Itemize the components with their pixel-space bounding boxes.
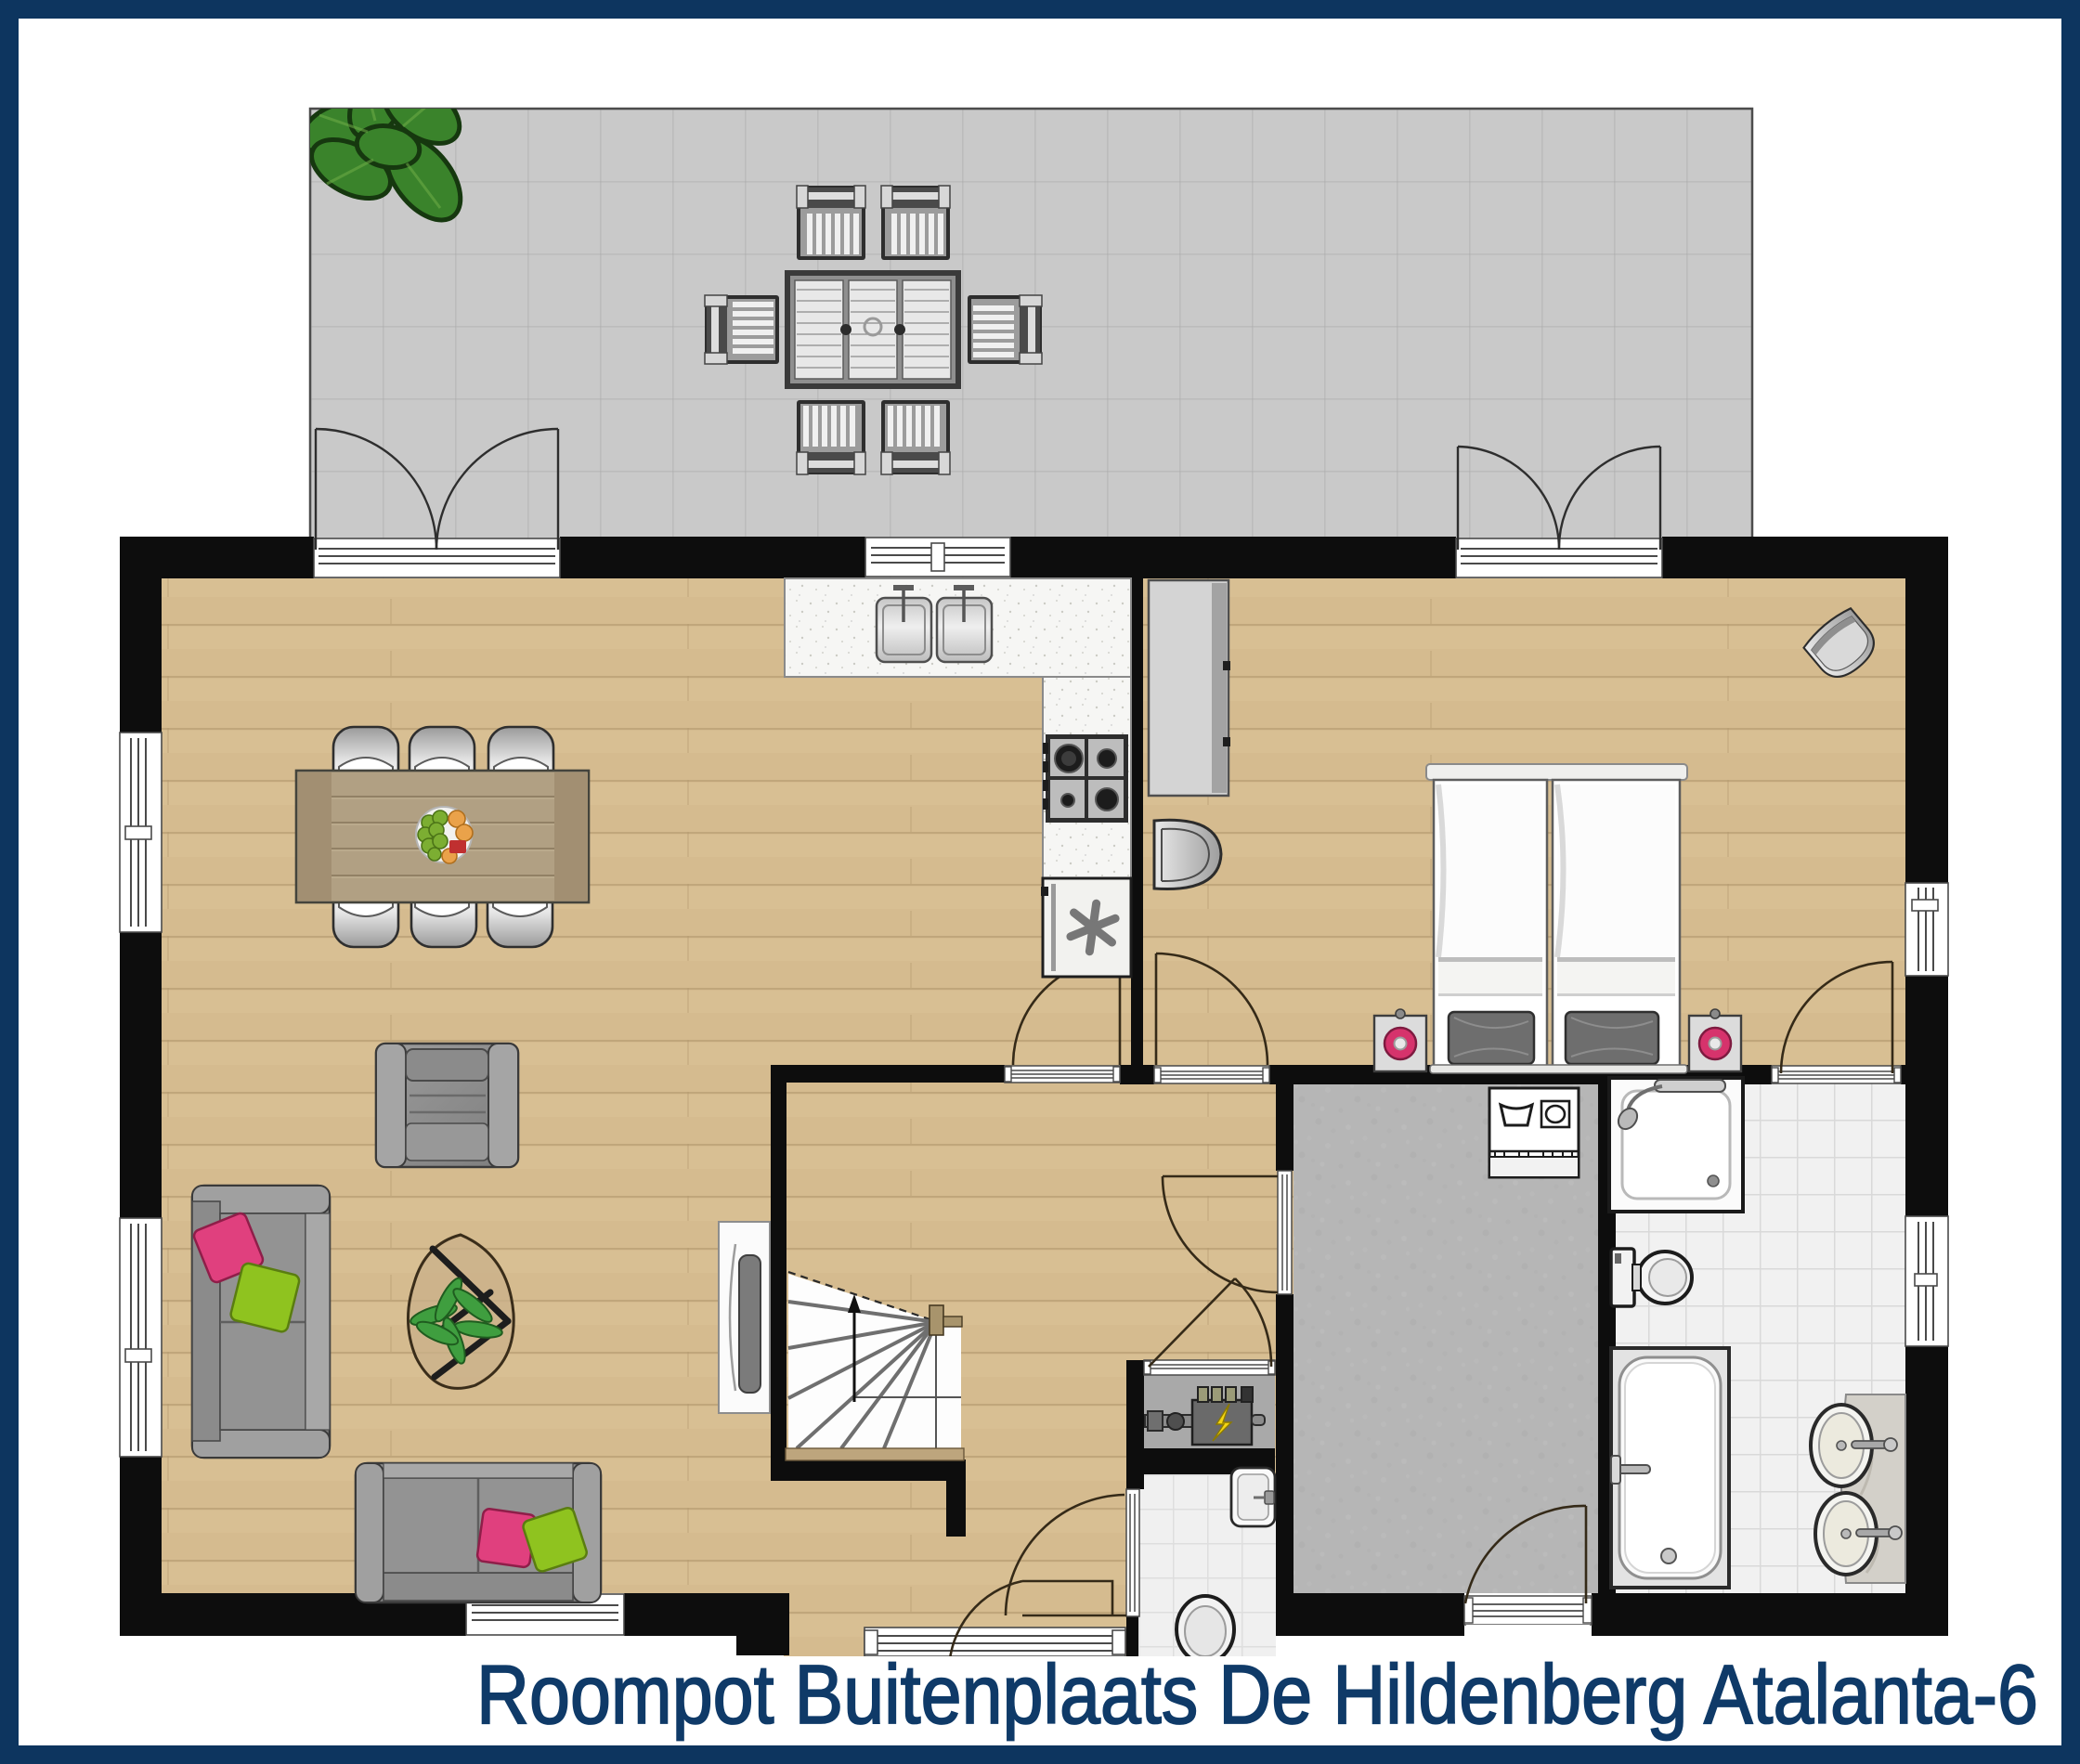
svg-text:Roompot Buitenplaats De Hilden: Roompot Buitenplaats De Hildenberg Atala…	[476, 1649, 2038, 1742]
